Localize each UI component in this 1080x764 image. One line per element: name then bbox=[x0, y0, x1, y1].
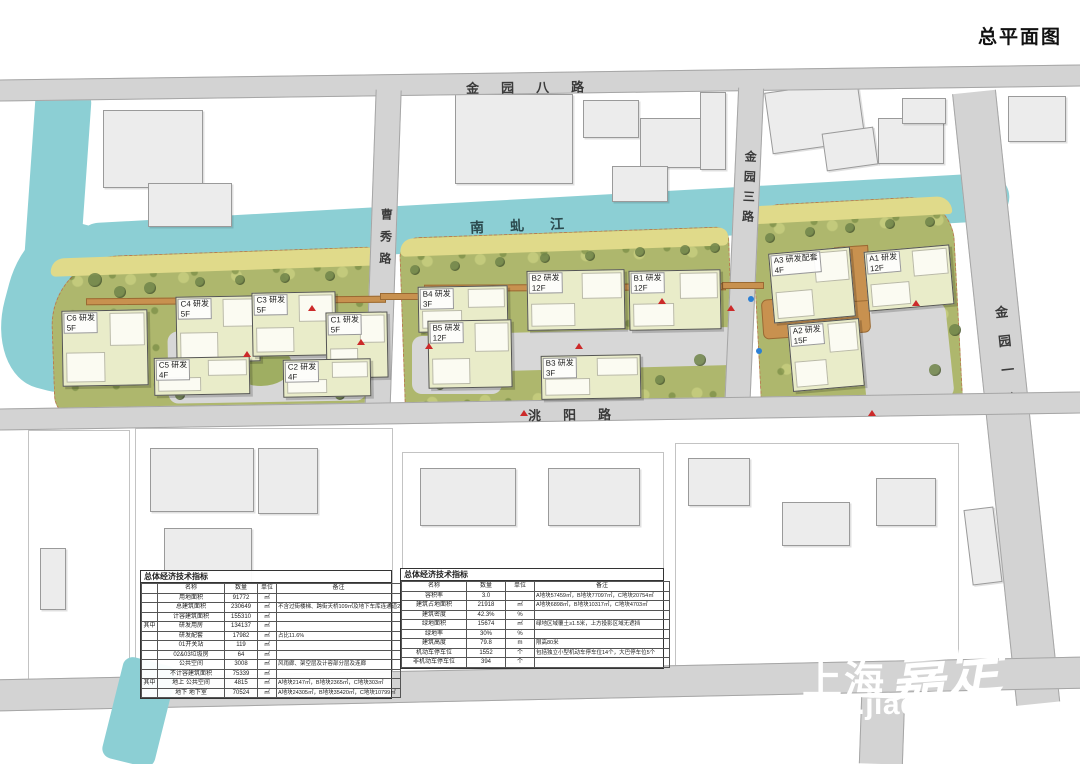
table-cell: 15674 bbox=[467, 620, 506, 630]
table-cell: 75339 bbox=[225, 669, 258, 679]
building-A3: A3 研发配套4F bbox=[768, 247, 856, 324]
building-label: C5 研发4F bbox=[156, 359, 191, 381]
table-cell: ㎡ bbox=[506, 620, 535, 630]
table-row: 建筑占地面积21918㎡A地块6898㎡，B地块10317㎡，C地块4703㎡ bbox=[402, 601, 670, 611]
building-floors: 4F bbox=[288, 372, 317, 382]
table-header-row: 名称数量单位备注 bbox=[142, 584, 401, 594]
table-title: 总体经济技术指标 bbox=[401, 569, 663, 581]
table-cell: ㎡ bbox=[258, 688, 277, 698]
table-cell: ㎡ bbox=[258, 612, 277, 622]
table-cell: 3.0 bbox=[467, 591, 506, 601]
table-cell bbox=[277, 650, 401, 660]
table-row: 建筑高度79.8m限高80米 bbox=[402, 639, 670, 649]
table-cell bbox=[142, 603, 158, 613]
building-B1: B1 研发12F bbox=[628, 269, 721, 331]
table-cell: 限高80米 bbox=[535, 639, 670, 649]
tree bbox=[845, 223, 855, 233]
table-cell bbox=[142, 669, 158, 679]
entrance-marker bbox=[425, 343, 433, 349]
building-C6: C6 研发5F bbox=[61, 309, 148, 386]
building-roof bbox=[256, 327, 294, 352]
table-cell: 02&03垃圾房 bbox=[158, 650, 225, 660]
table-row: 建筑密度42.3%% bbox=[402, 610, 670, 620]
table-cell: 119 bbox=[225, 641, 258, 651]
entrance-marker bbox=[575, 343, 583, 349]
building-label: B2 研发12F bbox=[529, 272, 563, 294]
building-floors: 5F bbox=[67, 323, 96, 333]
table-cell: 79.8 bbox=[467, 639, 506, 649]
context-building bbox=[420, 468, 516, 526]
table-row: 其中研发用房134137㎡ bbox=[142, 622, 401, 632]
building-floors: 12F bbox=[433, 333, 461, 343]
building-name: C2 研发 bbox=[288, 362, 317, 372]
table-cell bbox=[142, 612, 158, 622]
table-cell: 70524 bbox=[225, 688, 258, 698]
tree bbox=[195, 277, 205, 287]
entrance-marker bbox=[912, 300, 920, 306]
table-cell: 394 bbox=[467, 658, 506, 668]
table-row: 计容建筑面积155310㎡ bbox=[142, 612, 401, 622]
road-label-jinyuan-8: 金园八路 bbox=[466, 76, 606, 97]
table-cell: ㎡ bbox=[258, 641, 277, 651]
tree bbox=[949, 324, 961, 336]
context-building bbox=[822, 127, 879, 172]
table-cell bbox=[277, 622, 401, 632]
column-header bbox=[142, 584, 158, 594]
building-name: C3 研发 bbox=[256, 295, 285, 305]
table-cell: 用地面积 bbox=[158, 593, 225, 603]
table-cell: 42.3% bbox=[467, 610, 506, 620]
walkway-bridge-jinyuan3 bbox=[722, 282, 764, 289]
tree bbox=[540, 253, 550, 263]
context-building bbox=[1008, 96, 1066, 142]
building-label: B5 研发12F bbox=[429, 322, 463, 344]
building-roof bbox=[911, 248, 948, 276]
context-building bbox=[700, 92, 726, 170]
building-name: B3 研发 bbox=[546, 358, 574, 368]
building-roof bbox=[332, 361, 368, 377]
column-header: 备注 bbox=[535, 582, 670, 592]
entrance-marker bbox=[868, 410, 876, 416]
building-roof bbox=[794, 359, 828, 388]
table-cell: 机动车停车位 bbox=[402, 648, 467, 658]
building-floors: 4F bbox=[159, 370, 188, 380]
tree bbox=[325, 271, 335, 281]
context-building bbox=[878, 118, 944, 164]
indicators-table: 名称数量单位备注用地面积91772㎡总建筑面积230649㎡不含过街楼梯、跨街天… bbox=[141, 583, 401, 698]
table-cell bbox=[535, 658, 670, 668]
table-cell: ㎡ bbox=[258, 660, 277, 670]
table-cell: A地块57459㎡，B地块77097㎡，C地块20754㎡ bbox=[535, 591, 670, 601]
building-roof bbox=[680, 272, 718, 298]
building-floors: 15F bbox=[793, 334, 822, 346]
tree bbox=[805, 227, 815, 237]
table-cell: 地上 公共空间 bbox=[158, 679, 225, 689]
building-roof bbox=[870, 281, 910, 307]
building-floors: 12F bbox=[634, 283, 662, 293]
table-cell: 不计容建筑面积 bbox=[158, 669, 225, 679]
table-cell: 绿地面积 bbox=[402, 620, 467, 630]
table-cell bbox=[535, 629, 670, 639]
building-B2: B2 研发12F bbox=[526, 269, 625, 331]
table-cell: ㎡ bbox=[258, 603, 277, 613]
table-cell bbox=[277, 612, 401, 622]
table-cell: 风雨廊、架空层及计容部分层及连廊 bbox=[277, 660, 401, 670]
tree bbox=[765, 233, 775, 243]
building-name: C6 研发 bbox=[66, 313, 95, 323]
tree bbox=[144, 282, 156, 294]
building-name: B5 研发 bbox=[432, 323, 460, 333]
context-building bbox=[902, 98, 946, 124]
road-label-caoxiu: 曹秀路 bbox=[376, 208, 395, 275]
table-cell: 绿地率 bbox=[402, 629, 467, 639]
table-row: 容积率3.0A地块57459㎡，B地块77097㎡，C地块20754㎡ bbox=[402, 591, 670, 601]
info-marker bbox=[748, 296, 754, 302]
tree bbox=[495, 257, 505, 267]
building-roof bbox=[66, 352, 105, 382]
table-cell: 3008 bbox=[225, 660, 258, 670]
table-cell bbox=[535, 610, 670, 620]
building-roof bbox=[597, 357, 638, 376]
table-cell bbox=[142, 660, 158, 670]
context-building bbox=[876, 478, 936, 526]
table-row: 其中地上 公共空间4815㎡A地块2147㎡，B地块2365㎡，C地块303㎡ bbox=[142, 679, 401, 689]
entrance-marker bbox=[520, 410, 528, 416]
building-roof bbox=[180, 332, 218, 358]
table-cell: 91772 bbox=[225, 593, 258, 603]
table-cell: 地下 地下室 bbox=[158, 688, 225, 698]
building-label: B4 研发3F bbox=[420, 288, 454, 310]
column-header: 名称 bbox=[402, 582, 467, 592]
table-cell: 个 bbox=[506, 658, 535, 668]
table-cell: ㎡ bbox=[258, 631, 277, 641]
building-floors: 5F bbox=[257, 305, 286, 315]
building-roof bbox=[827, 321, 859, 352]
table-row: 用地面积91772㎡ bbox=[142, 593, 401, 603]
building-roof bbox=[432, 358, 470, 385]
context-building bbox=[455, 94, 573, 184]
building-label: C1 研发5F bbox=[327, 314, 362, 336]
indicators-table-general: 总体经济技术指标名称数量单位备注容积率3.0A地块57459㎡，B地块77097… bbox=[400, 568, 664, 669]
table-cell bbox=[277, 641, 401, 651]
table-cell bbox=[142, 593, 158, 603]
site-plan-canvas: 总平面图 南虬江 金园八路 曹秀路 金园三路 金园一路 洮阳路 C6 研发5 bbox=[0, 0, 1080, 764]
tree bbox=[450, 261, 460, 271]
column-header: 数量 bbox=[225, 584, 258, 594]
building-C3: C3 研发5F bbox=[251, 291, 336, 356]
column-header: 单位 bbox=[258, 584, 277, 594]
table-header-row: 名称数量单位备注 bbox=[402, 582, 670, 592]
table-row: 绿地率30%% bbox=[402, 629, 670, 639]
building-B3: B3 研发3F bbox=[541, 354, 642, 400]
building-A1: A1 研发12F bbox=[864, 244, 955, 311]
table-cell: 占比11.6% bbox=[277, 631, 401, 641]
table-cell bbox=[142, 641, 158, 651]
building-label: C2 研发4F bbox=[285, 361, 320, 383]
tree bbox=[88, 273, 102, 287]
building-roof bbox=[581, 272, 622, 298]
building-floors: 3F bbox=[546, 368, 574, 378]
building-label: B3 研发3F bbox=[543, 357, 577, 379]
tree bbox=[680, 245, 690, 255]
road-label-taoyang: 洮阳路 bbox=[528, 404, 633, 425]
building-B5: B5 研发12F bbox=[427, 319, 512, 388]
table-row: 机动车停车位1552个包括独立小型机动车停车位14个，大巴停车位5个 bbox=[402, 648, 670, 658]
table-cell: 研发配套 bbox=[158, 631, 225, 641]
table-cell: 30% bbox=[467, 629, 506, 639]
table-cell: 不含过街楼梯、跨街天桥109㎡及地下车库连通道285㎡ bbox=[277, 603, 401, 613]
table-row: 非机动车停车位394个 bbox=[402, 658, 670, 668]
table-cell: 研发用房 bbox=[158, 622, 225, 632]
context-building bbox=[612, 166, 668, 202]
info-marker bbox=[756, 348, 762, 354]
table-cell bbox=[142, 650, 158, 660]
table-cell: A地块24305㎡，B地块35420㎡，C地块10799㎡ bbox=[277, 688, 401, 698]
building-roof bbox=[633, 303, 675, 327]
building-roof bbox=[775, 289, 814, 319]
building-C2: C2 研发4F bbox=[283, 358, 372, 398]
building-floors: 5F bbox=[181, 309, 210, 319]
building-floors: 12F bbox=[870, 261, 899, 273]
building-floors: 3F bbox=[423, 299, 451, 309]
tree bbox=[694, 354, 706, 366]
entrance-marker bbox=[243, 351, 251, 357]
building-C5: C5 研发4F bbox=[154, 356, 251, 396]
building-label: A3 研发配套4F bbox=[770, 251, 822, 276]
context-building bbox=[148, 183, 232, 227]
column-header: 名称 bbox=[158, 584, 225, 594]
table-cell: 建筑占地面积 bbox=[402, 601, 467, 611]
building-floors: 12F bbox=[532, 283, 560, 293]
table-row: 绿地面积15674㎡绿地区域覆土≥1.5米，上方投影区域无遮挡 bbox=[402, 620, 670, 630]
table-row: 地下 地下室70524㎡A地块24305㎡，B地块35420㎡，C地块10799… bbox=[142, 688, 401, 698]
table-cell: 包括独立小型机动车停车位14个，大巴停车位5个 bbox=[535, 648, 670, 658]
table-cell: ㎡ bbox=[506, 601, 535, 611]
table-title: 总体经济技术指标 bbox=[141, 571, 391, 583]
tree bbox=[114, 286, 126, 298]
building-roof bbox=[474, 322, 509, 352]
building-label: A1 研发12F bbox=[866, 251, 902, 275]
table-row: 不计容建筑面积75339㎡ bbox=[142, 669, 401, 679]
indicators-table-overall: 总体经济技术指标名称数量单位备注用地面积91772㎡总建筑面积230649㎡不含… bbox=[140, 570, 392, 699]
context-building bbox=[103, 110, 203, 188]
tree bbox=[929, 364, 941, 376]
table-cell bbox=[506, 591, 535, 601]
building-label: C3 研发5F bbox=[253, 294, 288, 316]
context-building bbox=[782, 502, 850, 546]
tree bbox=[585, 251, 595, 261]
tree bbox=[235, 275, 245, 285]
table-cell: m bbox=[506, 639, 535, 649]
table-cell: ㎡ bbox=[258, 593, 277, 603]
table-cell bbox=[277, 669, 401, 679]
table-cell: 17982 bbox=[225, 631, 258, 641]
table-cell bbox=[142, 631, 158, 641]
entrance-marker bbox=[658, 298, 666, 304]
context-building bbox=[40, 548, 66, 610]
building-name: B2 研发 bbox=[532, 273, 560, 283]
watermark-url: www.jiading.g bbox=[786, 688, 993, 722]
tree bbox=[280, 273, 290, 283]
table-cell: 01开关站 bbox=[158, 641, 225, 651]
building-label: C4 研发5F bbox=[177, 298, 212, 320]
tree bbox=[710, 243, 720, 253]
table-cell: 230649 bbox=[225, 603, 258, 613]
table-cell: % bbox=[506, 610, 535, 620]
table-cell: ㎡ bbox=[258, 622, 277, 632]
table-cell: 绿地区域覆土≥1.5米，上方投影区域无遮挡 bbox=[535, 620, 670, 630]
building-name: C4 研发 bbox=[180, 299, 209, 309]
table-cell: 计容建筑面积 bbox=[158, 612, 225, 622]
tree bbox=[635, 247, 645, 257]
table-cell: ㎡ bbox=[258, 650, 277, 660]
column-header: 数量 bbox=[467, 582, 506, 592]
table-cell: 非机动车停车位 bbox=[402, 658, 467, 668]
table-cell: 21918 bbox=[467, 601, 506, 611]
table-cell: % bbox=[506, 629, 535, 639]
tree bbox=[925, 217, 935, 227]
building-label: C6 研发5F bbox=[63, 312, 98, 334]
building-name: B4 研发 bbox=[423, 289, 451, 299]
entrance-marker bbox=[308, 305, 316, 311]
indicators-table: 名称数量单位备注容积率3.0A地块57459㎡，B地块77097㎡，C地块207… bbox=[401, 581, 670, 668]
context-building bbox=[583, 100, 639, 138]
building-roof bbox=[207, 359, 247, 376]
context-building bbox=[688, 458, 750, 506]
table-row: 研发配套17982㎡占比11.6% bbox=[142, 631, 401, 641]
building-floors: 5F bbox=[331, 324, 360, 334]
road-label-jinyuan-3: 金园三路 bbox=[739, 150, 759, 231]
building-roof bbox=[109, 312, 145, 345]
entrance-marker bbox=[727, 305, 735, 311]
table-row: 总建筑面积230649㎡不含过街楼梯、跨街天桥109㎡及地下车库连通道285㎡ bbox=[142, 603, 401, 613]
building-name: C5 研发 bbox=[159, 360, 188, 370]
context-building bbox=[258, 448, 318, 514]
table-cell: 4815 bbox=[225, 679, 258, 689]
table-cell: 建筑密度 bbox=[402, 610, 467, 620]
page-title: 总平面图 bbox=[978, 22, 1062, 49]
building-roof bbox=[545, 378, 590, 396]
table-cell: 134137 bbox=[225, 622, 258, 632]
entrance-marker bbox=[357, 339, 365, 345]
table-cell: 公共空间 bbox=[158, 660, 225, 670]
table-cell: A地块6898㎡，B地块10317㎡，C地块4703㎡ bbox=[535, 601, 670, 611]
building-label: B1 研发12F bbox=[631, 272, 665, 294]
building-label: A2 研发15F bbox=[789, 323, 825, 347]
tree bbox=[885, 219, 895, 229]
table-cell: ㎡ bbox=[258, 679, 277, 689]
table-cell: 容积率 bbox=[402, 591, 467, 601]
building-name: B1 研发 bbox=[634, 273, 662, 283]
building-roof bbox=[468, 288, 505, 308]
table-cell: 其中 bbox=[142, 679, 158, 689]
tree bbox=[410, 265, 420, 275]
table-cell: 建筑高度 bbox=[402, 639, 467, 649]
table-cell: ㎡ bbox=[258, 669, 277, 679]
table-cell: 64 bbox=[225, 650, 258, 660]
table-cell: 总建筑面积 bbox=[158, 603, 225, 613]
table-cell: 155310 bbox=[225, 612, 258, 622]
table-cell: 其中 bbox=[142, 622, 158, 632]
building-roof bbox=[531, 303, 576, 327]
table-cell bbox=[142, 688, 158, 698]
context-building bbox=[150, 448, 254, 512]
column-header: 单位 bbox=[506, 582, 535, 592]
building-name: C1 研发 bbox=[330, 315, 359, 325]
table-row: 01开关站119㎡ bbox=[142, 641, 401, 651]
table-row: 02&03垃圾房64㎡ bbox=[142, 650, 401, 660]
table-cell: A地块2147㎡，B地块2365㎡，C地块303㎡ bbox=[277, 679, 401, 689]
column-header: 备注 bbox=[277, 584, 401, 594]
table-cell: 个 bbox=[506, 648, 535, 658]
table-row: 公共空间3008㎡风雨廊、架空层及计容部分层及连廊 bbox=[142, 660, 401, 670]
plaza-a bbox=[857, 302, 955, 407]
table-cell: 1552 bbox=[467, 648, 506, 658]
tree bbox=[655, 375, 665, 385]
context-building bbox=[548, 468, 640, 526]
building-A2: A2 研发15F bbox=[787, 318, 865, 392]
table-cell bbox=[277, 593, 401, 603]
